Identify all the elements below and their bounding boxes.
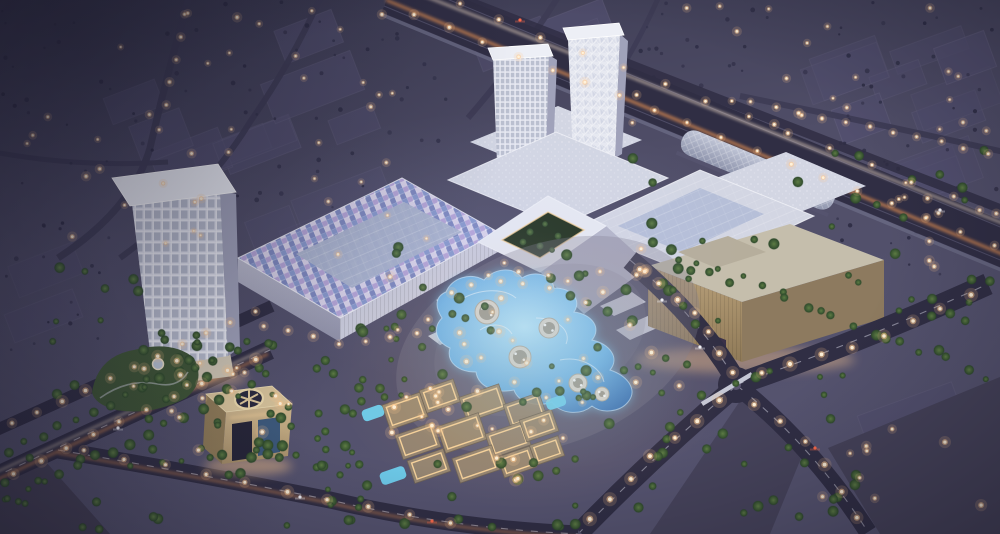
palm-tree xyxy=(349,410,357,418)
street-light xyxy=(517,270,520,273)
palm-tree xyxy=(620,366,628,374)
palm-tree xyxy=(277,440,288,451)
palm-tree xyxy=(896,308,902,314)
palm-tree xyxy=(244,338,251,345)
palm-tree xyxy=(666,244,677,255)
street-light xyxy=(287,329,290,332)
street-light xyxy=(846,106,848,108)
street-light xyxy=(497,18,500,21)
background-tree xyxy=(946,148,949,151)
palm-tree xyxy=(983,376,989,382)
background-tree xyxy=(907,236,911,240)
palm-tree xyxy=(890,249,900,259)
background-tree xyxy=(836,217,839,220)
palm-tree xyxy=(962,197,968,203)
palm-tree xyxy=(262,370,269,377)
street-light xyxy=(254,358,258,362)
palm-tree xyxy=(345,463,350,468)
background-tree xyxy=(664,1,668,5)
background-tree xyxy=(61,221,64,224)
palm-tree xyxy=(828,506,839,517)
palm-tree xyxy=(254,437,264,447)
street-light xyxy=(430,424,434,428)
street-light xyxy=(849,452,851,454)
background-tree xyxy=(395,32,399,36)
street-light xyxy=(547,274,550,277)
background-tree xyxy=(923,21,927,25)
palm-tree xyxy=(349,450,355,456)
palm-tree xyxy=(325,487,330,492)
palm-tree xyxy=(741,461,747,467)
palm-tree xyxy=(780,294,788,302)
street-light xyxy=(226,369,229,372)
street-light xyxy=(871,164,874,167)
street-light xyxy=(840,490,843,493)
street-light xyxy=(686,121,688,123)
background-tree xyxy=(342,56,345,59)
street-light xyxy=(369,105,372,108)
palm-tree xyxy=(694,261,700,267)
background-tree xyxy=(134,119,137,122)
street-light xyxy=(993,244,996,247)
background-tree xyxy=(381,38,384,41)
street-light xyxy=(855,76,857,78)
street-light xyxy=(499,296,503,300)
street-light xyxy=(205,331,208,334)
palm-tree xyxy=(649,483,656,490)
street-light xyxy=(804,440,807,443)
street-light xyxy=(635,94,638,97)
street-light xyxy=(230,389,233,392)
street-light xyxy=(178,416,181,419)
street-light xyxy=(693,311,696,314)
street-light xyxy=(476,424,478,426)
background-tree xyxy=(871,1,874,4)
palm-tree xyxy=(322,446,329,453)
street-light xyxy=(558,380,560,382)
street-light xyxy=(664,83,667,86)
palm-tree xyxy=(532,388,541,397)
street-light xyxy=(719,5,721,7)
background-tree xyxy=(33,342,36,345)
background-tree xyxy=(685,38,689,42)
palm-tree xyxy=(740,509,747,516)
palm-tree xyxy=(699,238,705,244)
background-tree xyxy=(305,23,310,28)
car xyxy=(938,208,941,211)
palm-tree xyxy=(659,390,665,396)
palm-tree xyxy=(265,339,273,347)
street-light xyxy=(228,52,230,54)
street-light xyxy=(40,459,44,463)
palm-tree xyxy=(821,392,827,398)
palm-tree xyxy=(337,472,344,479)
background-tree xyxy=(847,114,850,117)
background-tree xyxy=(647,47,650,50)
street-light xyxy=(676,298,680,302)
street-light xyxy=(427,318,430,321)
street-light xyxy=(551,69,554,72)
street-light xyxy=(773,123,776,126)
palm-tree xyxy=(321,428,329,436)
palm-tree xyxy=(418,343,426,351)
palm-tree xyxy=(967,275,976,284)
palm-tree xyxy=(35,477,42,484)
street-light xyxy=(26,143,28,145)
street-light xyxy=(325,498,328,501)
street-light xyxy=(65,447,68,450)
background-tree xyxy=(165,31,170,36)
street-light xyxy=(446,408,449,411)
palm-tree xyxy=(581,365,592,376)
palm-tree xyxy=(628,153,638,163)
background-tree xyxy=(660,52,663,55)
palm-tree xyxy=(650,370,656,376)
background-tree xyxy=(901,74,905,78)
palm-tree xyxy=(90,450,100,460)
palm-tree xyxy=(329,369,338,378)
background-tree xyxy=(107,236,110,239)
street-light xyxy=(695,419,699,423)
background-tree xyxy=(194,28,198,32)
palm-tree xyxy=(669,286,676,293)
background-tree xyxy=(24,97,29,102)
palm-tree xyxy=(95,525,103,533)
palm-tree xyxy=(561,250,572,261)
street-light xyxy=(165,242,167,244)
palm-tree xyxy=(82,268,88,274)
street-light xyxy=(962,121,965,124)
street-light xyxy=(979,503,982,506)
background-tree xyxy=(436,139,440,143)
palm-tree xyxy=(580,389,586,395)
background-tree xyxy=(350,151,354,155)
street-light xyxy=(785,77,788,80)
palm-tree xyxy=(355,504,362,511)
palm-tree xyxy=(769,495,778,504)
background-tree xyxy=(236,194,239,197)
palm-tree xyxy=(160,420,167,427)
palm-tree xyxy=(662,355,669,362)
street-light xyxy=(640,247,643,250)
background-tree xyxy=(741,70,743,72)
car xyxy=(698,345,701,348)
palm-tree xyxy=(434,460,442,468)
palm-tree xyxy=(685,276,691,282)
street-light xyxy=(205,473,208,476)
street-light xyxy=(200,382,203,385)
background-tree xyxy=(283,30,287,34)
background-tree xyxy=(273,117,276,120)
background-tree xyxy=(318,20,321,23)
car xyxy=(116,426,119,429)
street-light xyxy=(582,52,584,54)
palm-tree xyxy=(751,236,758,243)
street-light xyxy=(194,201,196,203)
street-light xyxy=(390,431,394,435)
palm-tree xyxy=(908,296,914,302)
street-light xyxy=(243,371,246,374)
background-tree xyxy=(387,130,391,134)
palm-tree xyxy=(127,463,133,469)
background-tree xyxy=(14,256,19,261)
street-light xyxy=(628,323,631,326)
background-tree xyxy=(980,7,983,10)
street-light xyxy=(260,430,264,434)
street-light xyxy=(262,325,265,328)
street-light xyxy=(389,275,392,278)
street-light xyxy=(529,430,532,433)
street-light xyxy=(11,422,14,425)
background-tree xyxy=(66,124,68,126)
background-tree xyxy=(728,64,731,67)
palm-tree xyxy=(634,503,644,513)
palm-tree xyxy=(785,444,792,451)
street-light xyxy=(481,41,484,44)
palm-tree xyxy=(26,454,34,462)
background-tree xyxy=(646,26,648,28)
street-light xyxy=(685,7,688,10)
courtyard-tree xyxy=(542,221,548,227)
palm-tree xyxy=(1,478,10,487)
street-light xyxy=(158,129,160,131)
palm-tree xyxy=(21,438,28,445)
street-light xyxy=(823,463,827,467)
palm-tree xyxy=(686,266,695,275)
palm-tree xyxy=(389,357,394,362)
street-light xyxy=(938,307,941,310)
palm-tree xyxy=(552,519,563,530)
palm-tree xyxy=(184,355,193,364)
background-tree xyxy=(254,198,259,203)
umbrella xyxy=(551,329,554,332)
palm-tree xyxy=(344,515,353,524)
background-tree xyxy=(277,165,281,169)
street-light xyxy=(717,351,721,355)
street-light xyxy=(525,361,528,364)
palm-tree xyxy=(53,319,59,325)
street-light xyxy=(947,70,949,72)
background-tree xyxy=(141,141,145,145)
street-light xyxy=(459,2,461,4)
street-light xyxy=(542,419,545,422)
street-light xyxy=(832,97,834,99)
background-tree xyxy=(803,70,808,75)
street-light xyxy=(458,331,461,334)
palm-tree xyxy=(570,519,580,529)
street-light xyxy=(521,282,524,285)
palm-tree xyxy=(793,177,803,187)
street-light xyxy=(230,128,232,130)
street-light xyxy=(197,449,200,452)
background-tree xyxy=(244,110,248,114)
palm-tree xyxy=(840,373,846,379)
street-light xyxy=(608,497,612,501)
street-light xyxy=(109,377,112,380)
street-light xyxy=(915,136,917,138)
background-tree xyxy=(70,301,73,304)
palm-tree xyxy=(829,224,835,230)
street-light xyxy=(286,490,290,494)
palm-tree xyxy=(248,380,256,388)
palm-tree xyxy=(55,262,65,272)
palm-tree xyxy=(673,263,684,274)
street-light xyxy=(562,437,565,440)
background-tree xyxy=(5,275,8,278)
background-tree xyxy=(732,62,736,66)
street-light xyxy=(148,113,151,116)
palm-tree xyxy=(234,347,242,355)
palm-tree xyxy=(89,408,98,417)
street-light xyxy=(186,384,189,387)
background-tree xyxy=(725,17,729,21)
scene-canvas xyxy=(0,0,1000,534)
street-light xyxy=(821,117,824,120)
car xyxy=(518,18,521,21)
background-tree xyxy=(68,321,72,325)
street-light xyxy=(164,463,167,466)
street-light xyxy=(132,385,134,387)
palm-tree xyxy=(284,522,290,528)
street-light xyxy=(425,237,427,239)
street-light xyxy=(200,197,203,200)
palm-tree xyxy=(39,433,48,442)
background-tree xyxy=(248,88,251,91)
background-tree xyxy=(99,80,103,84)
background-tree xyxy=(4,22,6,24)
street-light xyxy=(480,356,483,359)
street-light xyxy=(487,274,490,277)
palm-tree xyxy=(964,365,973,374)
street-light xyxy=(928,259,931,262)
palm-tree xyxy=(800,458,809,467)
street-light xyxy=(243,481,246,484)
palm-tree xyxy=(718,429,728,439)
background-tree xyxy=(231,81,236,86)
palm-tree xyxy=(158,329,165,336)
palm-tree xyxy=(850,323,857,330)
palm-tree xyxy=(207,454,214,461)
street-light xyxy=(367,505,370,508)
background-tree xyxy=(840,238,844,242)
street-light xyxy=(939,128,941,130)
street-light xyxy=(596,376,599,379)
palm-tree xyxy=(106,401,115,410)
street-light xyxy=(969,293,973,297)
street-light xyxy=(648,454,652,458)
street-light xyxy=(314,178,316,180)
street-light xyxy=(84,389,88,393)
palm-tree xyxy=(769,239,780,250)
palm-tree xyxy=(214,395,224,405)
street-light xyxy=(933,265,936,268)
street-light xyxy=(959,231,962,234)
street-light xyxy=(898,198,900,200)
background-tree xyxy=(366,47,370,51)
palm-tree xyxy=(122,392,128,398)
background-tree xyxy=(766,16,769,19)
palm-tree xyxy=(148,445,157,454)
palm-tree xyxy=(235,393,240,398)
palm-tree xyxy=(590,394,596,400)
palm-tree xyxy=(381,394,388,401)
palm-tree xyxy=(896,337,904,345)
street-light xyxy=(749,101,751,103)
background-tree xyxy=(400,97,404,101)
palm-tree xyxy=(753,501,763,511)
background-tree xyxy=(90,264,94,268)
palm-tree xyxy=(79,523,87,531)
umbrella xyxy=(514,352,517,355)
street-light xyxy=(183,13,185,15)
street-light xyxy=(978,209,981,212)
palm-tree xyxy=(179,458,184,463)
background-tree xyxy=(132,112,135,115)
background-tree xyxy=(935,16,938,19)
palm-tree xyxy=(691,320,700,329)
street-light xyxy=(650,351,654,355)
street-light xyxy=(381,13,384,16)
palm-tree xyxy=(154,373,165,384)
palm-tree xyxy=(675,257,682,264)
street-light xyxy=(499,280,502,283)
palm-tree xyxy=(317,461,326,470)
palm-tree xyxy=(357,496,364,503)
street-light xyxy=(911,319,915,323)
background-tree xyxy=(295,49,298,52)
palm-tree xyxy=(593,343,601,351)
background-tree xyxy=(96,337,99,340)
street-light xyxy=(962,147,965,150)
palm-tree xyxy=(70,380,80,390)
background-tree xyxy=(661,13,664,16)
street-light xyxy=(582,357,585,360)
background-tree xyxy=(444,98,447,101)
palm-tree xyxy=(275,453,284,462)
palm-tree xyxy=(129,274,139,284)
street-light xyxy=(890,202,893,205)
background-tree xyxy=(316,170,320,174)
palm-tree xyxy=(288,423,295,430)
palm-tree xyxy=(340,441,350,451)
palm-tree xyxy=(566,291,575,300)
street-light xyxy=(236,367,238,369)
street-light xyxy=(588,517,592,521)
palm-tree xyxy=(149,512,158,521)
background-tree xyxy=(973,128,977,132)
palm-tree xyxy=(552,467,560,475)
street-light xyxy=(303,77,305,79)
palm-tree xyxy=(759,282,766,289)
palm-tree xyxy=(677,409,683,415)
street-light xyxy=(873,497,876,500)
background-tree xyxy=(681,64,684,67)
street-light xyxy=(720,136,723,139)
aerial-rendering xyxy=(0,0,1000,534)
courtyard-tree xyxy=(520,239,527,246)
street-light xyxy=(516,477,519,480)
street-light xyxy=(378,94,380,96)
street-light xyxy=(227,151,229,153)
car xyxy=(813,446,816,449)
palm-tree xyxy=(4,448,13,457)
palm-tree xyxy=(529,458,538,467)
street-light xyxy=(491,428,493,430)
street-light xyxy=(420,415,422,417)
palm-tree xyxy=(462,402,472,412)
street-light xyxy=(364,340,366,342)
street-light xyxy=(118,420,121,423)
